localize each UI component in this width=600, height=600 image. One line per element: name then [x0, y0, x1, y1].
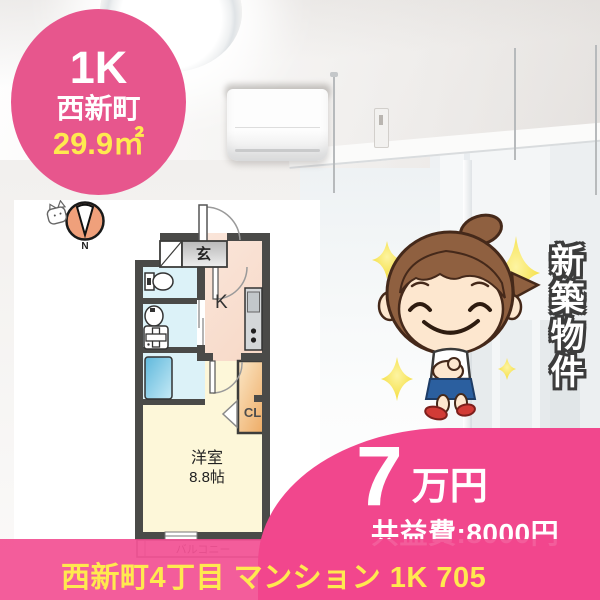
property-title: 西新町4丁目 マンション 1K 705 — [61, 554, 486, 596]
layout-type: 1K — [70, 45, 128, 90]
ac-panel-line — [235, 127, 320, 128]
closet-label: CL — [238, 406, 267, 421]
air-conditioner — [227, 89, 328, 161]
mascot-character — [366, 203, 548, 431]
skirt — [426, 379, 475, 399]
kitchen-counter-icon — [245, 288, 262, 350]
listing-card: 1K 西新町 29.9㎡ — [0, 0, 600, 600]
bathtub-icon — [145, 357, 172, 399]
compass-north-label: N — [76, 241, 94, 253]
sliding-door — [197, 300, 205, 345]
town-name: 西新町 — [56, 95, 140, 123]
power-outlet — [374, 108, 389, 148]
rod-mount — [330, 72, 338, 77]
hands — [448, 358, 460, 370]
floorplan-drawing — [14, 200, 320, 560]
new-construction-banner: 新築物件 — [547, 243, 581, 391]
floorplan-panel: N 玄 K CL 洋室 8.8帖 バルコニー — [14, 200, 320, 560]
toilet-icon — [145, 273, 173, 290]
compass-icon — [67, 203, 104, 240]
kitchen-label: K — [215, 292, 228, 314]
ac-vent — [235, 149, 320, 152]
mascot-drawing — [366, 203, 548, 431]
rent-price: 7 万円 — [356, 438, 488, 515]
room-size-label: 8.8帖 — [144, 469, 270, 486]
washing-machine-icon — [144, 326, 168, 349]
floor-area: 29.9㎡ — [53, 128, 144, 159]
rent-unit: 万円 — [412, 455, 488, 510]
property-badge: 1K 西新町 29.9㎡ — [11, 9, 186, 195]
laundry-pole-rod — [514, 48, 516, 160]
laundry-pole-rod — [333, 75, 335, 193]
laundry-pole-rod — [595, 45, 597, 195]
entrance-label: 玄 — [196, 246, 211, 263]
doodle-animal-icon — [45, 200, 69, 225]
room-label: 洋室 — [144, 450, 270, 468]
rent-amount: 7 — [356, 438, 403, 515]
shoe-cabinet — [160, 241, 182, 267]
washbasin-icon — [145, 306, 163, 326]
